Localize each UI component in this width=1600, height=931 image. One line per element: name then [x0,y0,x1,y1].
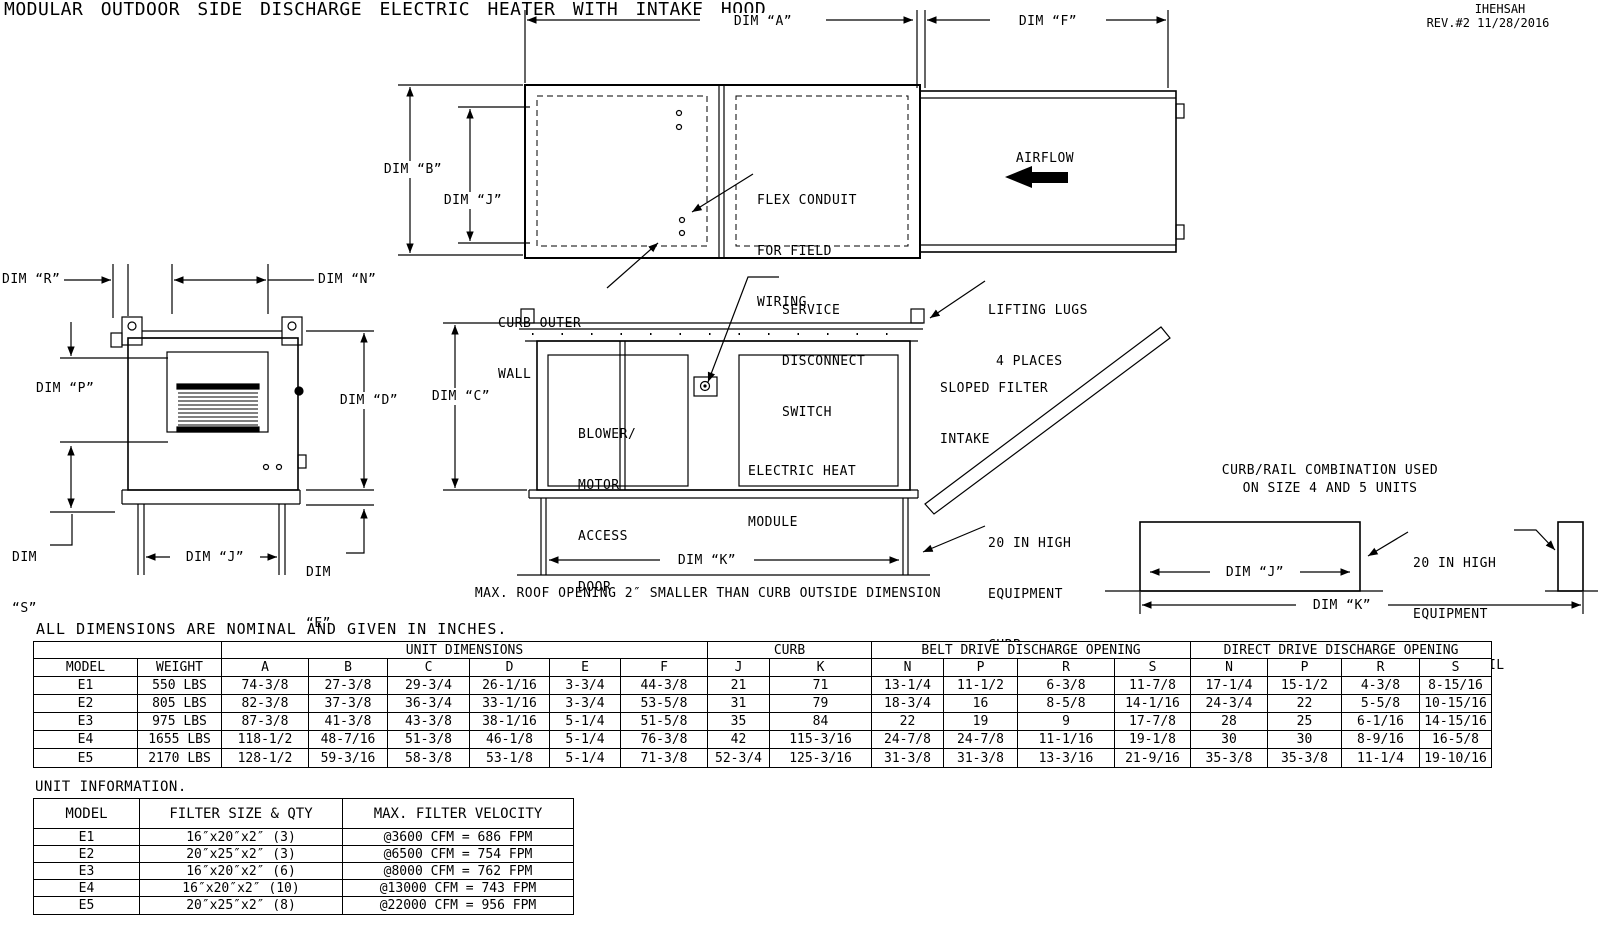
table-body: E1550 LBS74-3/827-3/829-3/426-1/163-3/44… [34,677,1491,767]
group-belt-drive: BELT DRIVE DISCHARGE OPENING [872,642,1191,659]
table-cell: 128-1/2 [222,749,309,767]
table-cell: E1 [34,677,138,695]
table-cell: 10-15/16 [1420,695,1491,713]
table-cell: FILTER SIZE & QTY [140,799,343,829]
table-cell: P [1268,659,1342,677]
group-direct-drive: DIRECT DRIVE DISCHARGE OPENING [1191,642,1491,659]
group-curb: CURB [708,642,872,659]
table-cell: 550 LBS [138,677,222,695]
table-cell: 58-3/8 [388,749,470,767]
dim-c-label: DIM “C” [418,388,504,405]
table-cell: 8-5/8 [1018,695,1115,713]
table-cell: 28 [1191,713,1268,731]
table-cell: 33-1/16 [470,695,550,713]
table-cell: 87-3/8 [222,713,309,731]
roof-opening-note: MAX. ROOF OPENING 2″ SMALLER THAN CURB O… [473,585,943,602]
drawing-canvas: MODULAR OUTDOOR SIDE DISCHARGE ELECTRIC … [0,0,1600,931]
table-cell: E2 [34,846,140,863]
table-cell: 16″x20″x2″ (10) [140,880,343,897]
table-cell: E2 [34,695,138,713]
table-cell: 82-3/8 [222,695,309,713]
table-cell: 46-1/8 [470,731,550,749]
table-cell: 19-1/8 [1115,731,1191,749]
table-cell: 31-3/8 [872,749,944,767]
dim-a-label: DIM “A” [700,13,826,30]
table-cell: 16-5/8 [1420,731,1491,749]
dim-p-label: DIM “P” [36,380,94,397]
table-cell: R [1018,659,1115,677]
table-cell: 18-3/4 [872,695,944,713]
curb-rail-title-line2: ON SIZE 4 AND 5 UNITS [1190,480,1470,497]
table-cell: 43-3/8 [388,713,470,731]
unit-table-body: E116″x20″x2″ (3)@3600 CFM = 686 FPME220″… [34,829,573,914]
table-cell: 11-1/16 [1018,731,1115,749]
table-cell: @8000 CFM = 762 FPM [343,863,573,880]
curb-outer-wall-label: CURB OUTER WALL [498,281,581,417]
table-cell: 6-3/8 [1018,677,1115,695]
table-cell: 2170 LBS [138,749,222,767]
table-cell: N [1191,659,1268,677]
table-cell: 11-1/2 [944,677,1018,695]
table-cell: 52-3/4 [708,749,770,767]
table-cell: 37-3/8 [309,695,388,713]
table-row: E416″x20″x2″ (10)@13000 CFM = 743 FPM [34,880,573,897]
table-cell: 27-3/8 [309,677,388,695]
table-cell: MODEL [34,659,138,677]
table-cell: 30 [1268,731,1342,749]
table-cell: C [388,659,470,677]
table-row: E520″x25″x2″ (8)@22000 CFM = 956 FPM [34,897,573,914]
table-cell: 21-9/16 [1115,749,1191,767]
table-cell: J [708,659,770,677]
table-cell: E3 [34,713,138,731]
group-unit-dimensions: UNIT DIMENSIONS [222,642,708,659]
dim-k-elevation-label: DIM “K” [660,552,754,569]
table-cell: E4 [34,880,140,897]
table-cell: @6500 CFM = 754 FPM [343,846,573,863]
table-cell: 8-15/16 [1420,677,1491,695]
table-row: E116″x20″x2″ (3)@3600 CFM = 686 FPM [34,829,573,846]
table-row: E316″x20″x2″ (6)@8000 CFM = 762 FPM [34,863,573,880]
table-column-header-row: MODELWEIGHTABCDEFJKNPRSNPRS [34,659,1491,677]
table-cell: 3-3/4 [550,677,621,695]
dim-f-label: DIM “F” [990,13,1106,30]
table-cell: 74-3/8 [222,677,309,695]
airflow-label: AIRFLOW [1005,150,1085,167]
curb-rail-title-line1: CURB/RAIL COMBINATION USED [1190,462,1470,479]
table-cell: 16″x20″x2″ (3) [140,829,343,846]
table-cell: 11-1/4 [1342,749,1420,767]
table-cell: 22 [1268,695,1342,713]
table-row: E2805 LBS82-3/837-3/836-3/433-1/163-3/45… [34,695,1491,713]
table-cell: D [470,659,550,677]
table-cell: N [872,659,944,677]
table-cell: 3-3/4 [550,695,621,713]
dimensions-note: ALL DIMENSIONS ARE NOMINAL AND GIVEN IN … [36,620,507,638]
table-cell: 24-7/8 [872,731,944,749]
table-cell: E5 [34,897,140,914]
unit-info-title: UNIT INFORMATION. [35,779,187,795]
table-cell: 42 [708,731,770,749]
table-cell: 125-3/16 [770,749,872,767]
sloped-filter-label: SLOPED FILTER INTAKE [940,346,1048,482]
table-cell: 24-3/4 [1191,695,1268,713]
table-cell: 71-3/8 [621,749,708,767]
table-cell: 35-3/8 [1191,749,1268,767]
table-row: E220″x25″x2″ (3)@6500 CFM = 754 FPM [34,846,573,863]
dim-k-detail-label: DIM “K” [1296,597,1388,614]
table-cell: 25 [1268,713,1342,731]
table-cell: E4 [34,731,138,749]
table-cell: 35-3/8 [1268,749,1342,767]
table-cell: 16″x20″x2″ (6) [140,863,343,880]
dim-n-label: DIM “N” [318,271,376,288]
table-cell: 805 LBS [138,695,222,713]
table-cell: 17-7/8 [1115,713,1191,731]
service-disconnect-label: SERVICE DISCONNECT SWITCH [782,268,865,455]
table-cell: 71 [770,677,872,695]
table-cell: E [550,659,621,677]
table-cell: MODEL [34,799,140,829]
dim-b-label: DIM “B” [370,161,456,178]
table-cell: A [222,659,309,677]
table-cell: 9 [1018,713,1115,731]
table-row: E41655 LBS118-1/248-7/1651-3/846-1/85-1/… [34,731,1491,749]
dim-r-label: DIM “R” [2,271,60,288]
table-cell: 31-3/8 [944,749,1018,767]
table-cell: @13000 CFM = 743 FPM [343,880,573,897]
table-cell: 13-3/16 [1018,749,1115,767]
table-cell: 26-1/16 [470,677,550,695]
table-cell: 21 [708,677,770,695]
table-cell: 35 [708,713,770,731]
table-cell: 36-3/4 [388,695,470,713]
dimension-table: UNIT DIMENSIONS CURB BELT DRIVE DISCHARG… [33,641,1492,768]
table-cell: 14-15/16 [1420,713,1491,731]
table-row: E3975 LBS87-3/841-3/843-3/838-1/165-1/45… [34,713,1491,731]
table-cell: 53-1/8 [470,749,550,767]
table-cell: @3600 CFM = 686 FPM [343,829,573,846]
dim-d-label: DIM “D” [326,392,412,409]
drawing-title: MODULAR OUTDOOR SIDE DISCHARGE ELECTRIC … [4,0,766,20]
table-group-header-row: UNIT DIMENSIONS CURB BELT DRIVE DISCHARG… [34,642,1491,659]
revision-info: REV.#2 11/28/2016 [1408,17,1568,30]
table-cell: 51-3/8 [388,731,470,749]
table-cell: 5-1/4 [550,731,621,749]
table-cell: 115-3/16 [770,731,872,749]
table-cell: 5-5/8 [1342,695,1420,713]
table-cell: B [309,659,388,677]
unit-info-table: MODELFILTER SIZE & QTYMAX. FILTER VELOCI… [33,798,574,915]
table-cell: 20″x25″x2″ (3) [140,846,343,863]
dim-j-detail-label: DIM “J” [1210,564,1300,581]
table-cell: 975 LBS [138,713,222,731]
table-cell: 51-5/8 [621,713,708,731]
table-cell: 5-1/4 [550,713,621,731]
table-cell: 41-3/8 [309,713,388,731]
table-cell: 20″x25″x2″ (8) [140,897,343,914]
table-cell: 6-1/16 [1342,713,1420,731]
table-cell: MAX. FILTER VELOCITY [343,799,573,829]
table-cell: 22 [872,713,944,731]
table-cell: 76-3/8 [621,731,708,749]
table-cell: 31 [708,695,770,713]
table-cell: 30 [1191,731,1268,749]
table-cell: 4-3/8 [1342,677,1420,695]
table-cell: P [944,659,1018,677]
table-cell: S [1115,659,1191,677]
table-cell: E1 [34,829,140,846]
table-cell: E3 [34,863,140,880]
table-row: E1550 LBS74-3/827-3/829-3/426-1/163-3/44… [34,677,1491,695]
table-cell: 19 [944,713,1018,731]
table-row: E52170 LBS128-1/259-3/1658-3/853-1/85-1/… [34,749,1491,767]
table-cell: 16 [944,695,1018,713]
table-cell: 19-10/16 [1420,749,1491,767]
electric-heat-label: ELECTRIC HEAT MODULE [748,429,856,565]
dim-j-side-label: DIM “J” [170,549,260,566]
table-cell: 38-1/16 [470,713,550,731]
side-view-linework [50,264,374,575]
table-cell: 11-7/8 [1115,677,1191,695]
table-cell: 79 [770,695,872,713]
table-cell: 59-3/16 [309,749,388,767]
table-cell: 15-1/2 [1268,677,1342,695]
table-cell: 44-3/8 [621,677,708,695]
table-cell: K [770,659,872,677]
table-cell: 17-1/4 [1191,677,1268,695]
table-cell: 14-1/16 [1115,695,1191,713]
table-cell: S [1420,659,1491,677]
dim-j-top-label: DIM “J” [430,192,516,209]
drawing-code: IHEHSAH [1440,3,1560,16]
table-cell: WEIGHT [138,659,222,677]
table-cell: 29-3/4 [388,677,470,695]
unit-table-header-row: MODELFILTER SIZE & QTYMAX. FILTER VELOCI… [34,799,573,829]
table-cell: R [1342,659,1420,677]
table-cell: 8-9/16 [1342,731,1420,749]
table-cell: 48-7/16 [309,731,388,749]
table-cell: 5-1/4 [550,749,621,767]
table-cell: @22000 CFM = 956 FPM [343,897,573,914]
table-cell: E5 [34,749,138,767]
table-cell: F [621,659,708,677]
table-cell: 13-1/4 [872,677,944,695]
table-cell: 53-5/8 [621,695,708,713]
table-cell: 24-7/8 [944,731,1018,749]
table-cell: 1655 LBS [138,731,222,749]
table-cell: 118-1/2 [222,731,309,749]
table-cell: 84 [770,713,872,731]
